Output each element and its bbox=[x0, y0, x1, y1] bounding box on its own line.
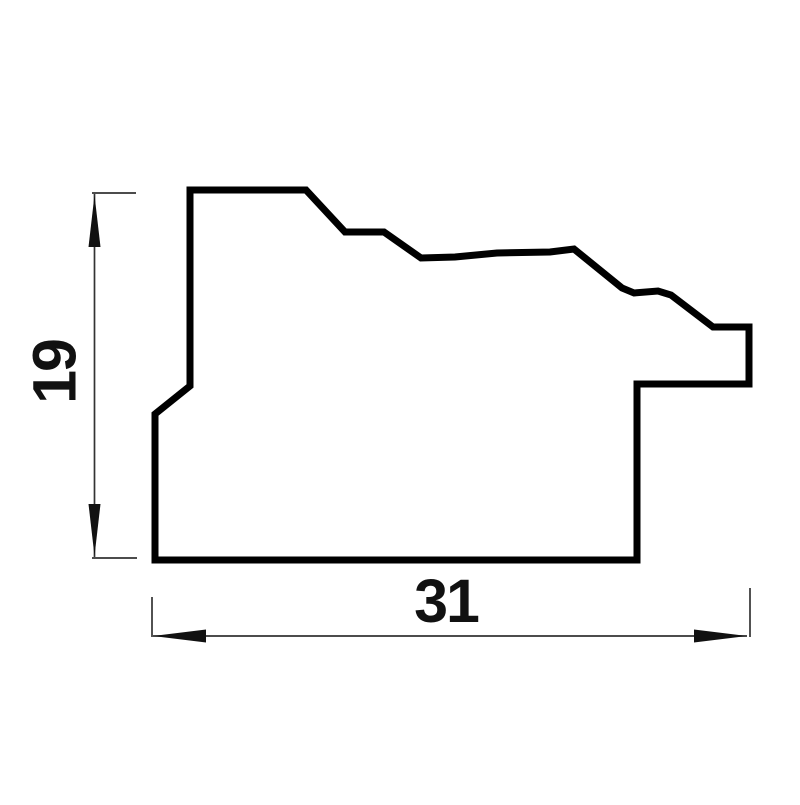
width-dimension: 31 bbox=[152, 567, 750, 643]
width-dimension-value: 31 bbox=[414, 567, 479, 635]
moulding-profile-outline bbox=[155, 190, 749, 560]
width-arrow-right-icon bbox=[694, 630, 747, 643]
moulding-cross-section-svg: 19 31 bbox=[0, 0, 800, 800]
height-dimension-value: 19 bbox=[20, 340, 88, 404]
height-arrow-up-icon bbox=[89, 195, 101, 247]
height-arrow-down-icon bbox=[89, 504, 101, 556]
technical-drawing-canvas: 19 31 bbox=[0, 0, 800, 800]
width-arrow-left-icon bbox=[153, 630, 206, 643]
height-dimension: 19 bbox=[20, 193, 137, 558]
